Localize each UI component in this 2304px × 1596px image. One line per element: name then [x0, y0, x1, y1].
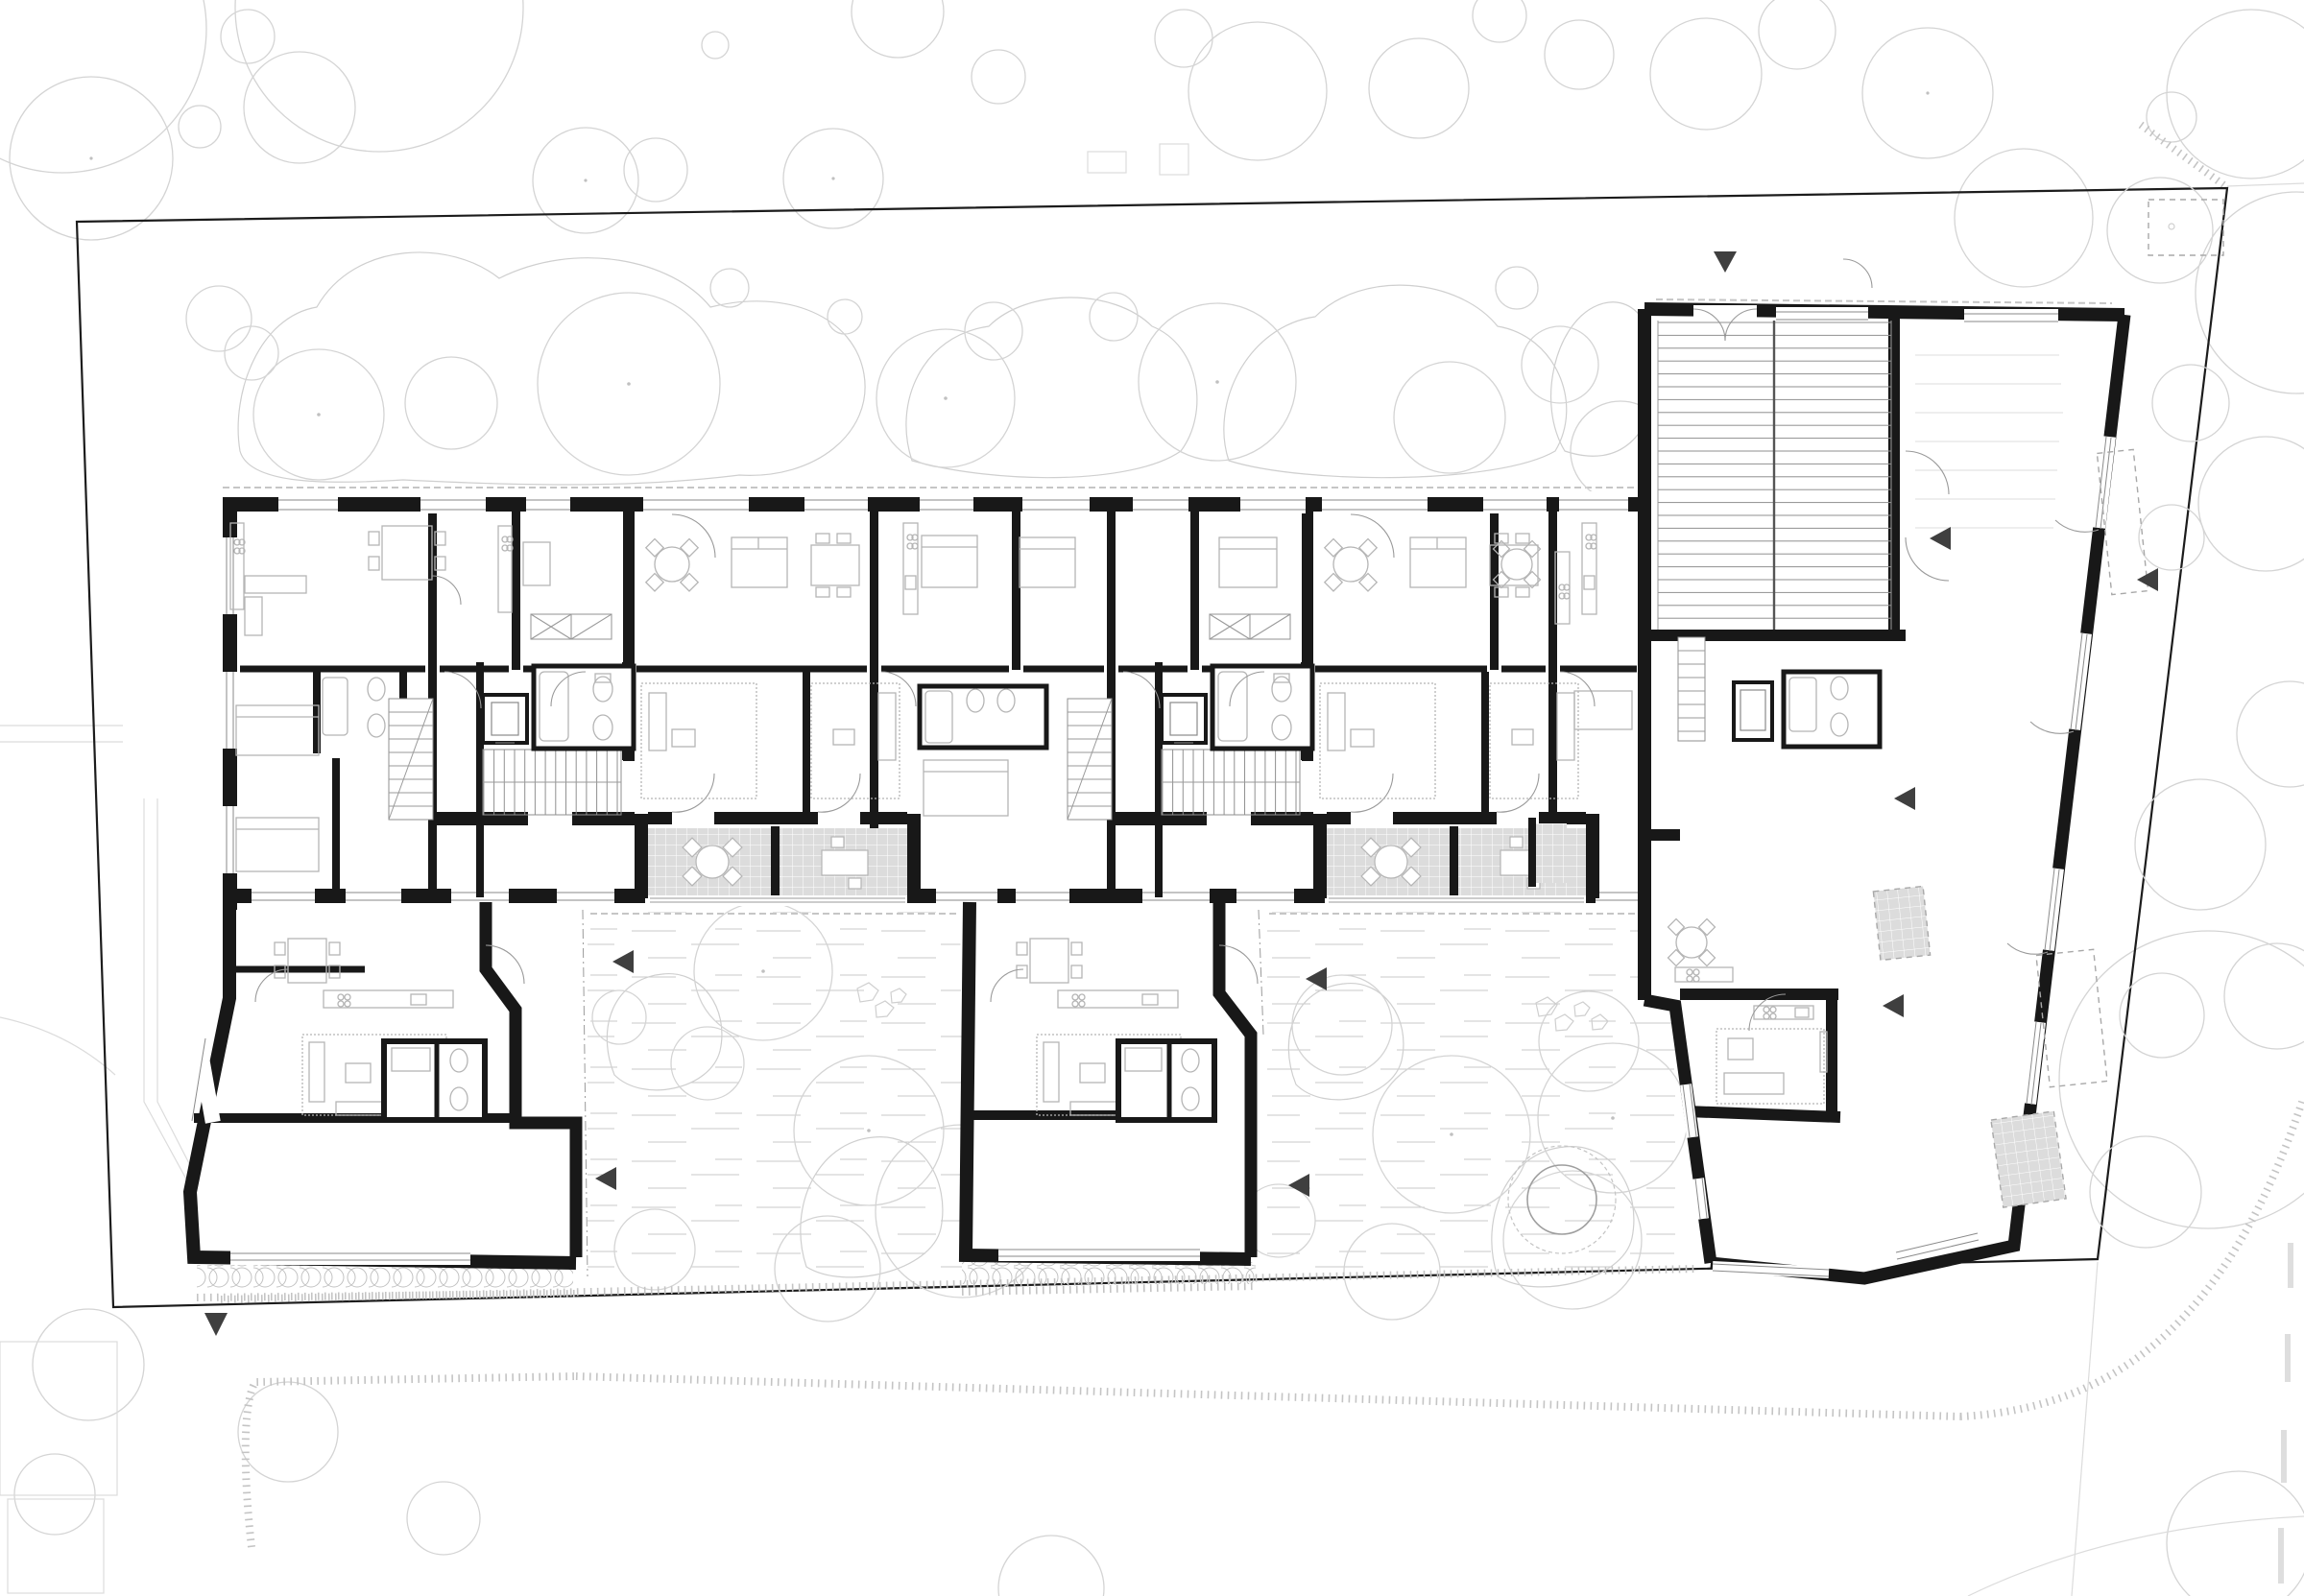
bathroom	[384, 1041, 485, 1120]
garden-ramp	[1658, 321, 1891, 630]
bathroom	[920, 686, 1046, 748]
bathroom	[1784, 672, 1880, 747]
shrub-patch	[238, 252, 865, 485]
elevator-icon	[1734, 682, 1772, 740]
lane-marking-dashes	[2281, 1243, 2291, 1584]
entrance-arrow-icon	[2137, 568, 2158, 591]
shrub-patch	[906, 298, 1197, 478]
courtyard-east	[1242, 912, 1688, 1320]
window	[278, 495, 1628, 513]
stair-icon	[483, 750, 621, 815]
shrub-patch	[1224, 285, 1567, 478]
garden-trees	[186, 267, 1670, 501]
balcony-table	[822, 850, 868, 875]
hedge-line	[1656, 299, 2112, 303]
stair-icon	[389, 699, 433, 820]
entrance-arrow-icon	[1714, 251, 1737, 273]
bathroom	[1118, 1041, 1214, 1120]
bathroom	[534, 666, 634, 749]
balcony-table	[696, 846, 729, 878]
stair-icon	[1678, 637, 1705, 741]
context-tree-group-bottom	[14, 1309, 2304, 1596]
setback-dashline	[1259, 910, 1263, 1035]
terrace-tiled	[1528, 818, 1567, 887]
floor-plan-canvas	[0, 0, 2304, 1596]
entrance-arrow-icon	[204, 1313, 228, 1336]
elevator-icon	[483, 695, 527, 743]
